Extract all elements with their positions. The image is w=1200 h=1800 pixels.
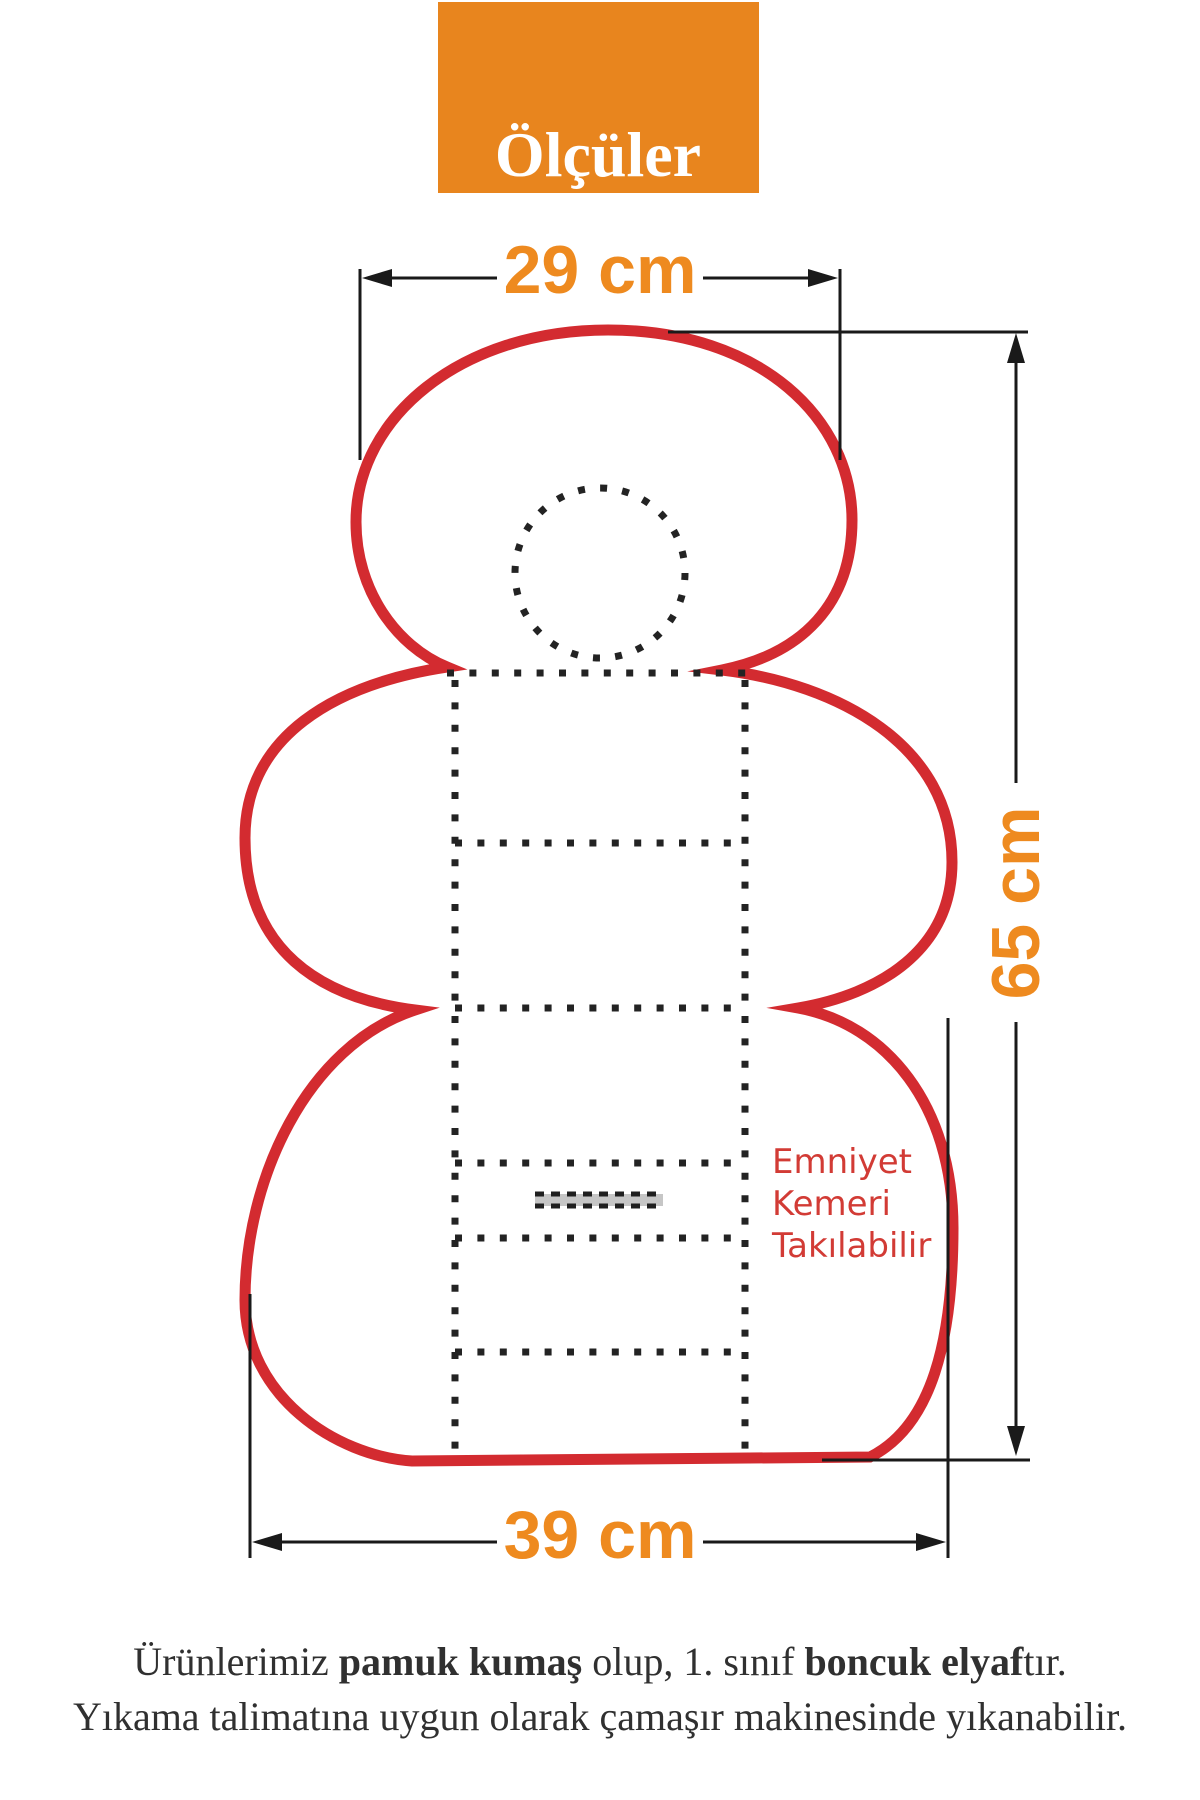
footer-line-1-seg-3: olup, 1. sınıf <box>582 1639 804 1684</box>
footer-line-1-seg-4: boncuk elyaf <box>804 1639 1024 1684</box>
seat-pad-outline <box>245 330 953 1461</box>
top-width-label: 29 cm <box>504 232 697 308</box>
footer-line-1: Ürünlerimiz pamuk kumaş olup, 1. sınıf b… <box>133 1639 1066 1684</box>
arrowhead-left <box>252 1533 282 1551</box>
belt-note-line-3: Takılabilir <box>771 1226 931 1266</box>
belt-note-line-1: Emniyet <box>772 1142 912 1182</box>
footer-line-1-seg-2: pamuk kumaş <box>339 1639 582 1684</box>
footer-line-1-seg-1: Ürünlerimiz <box>133 1639 339 1684</box>
footer-description: Ürünlerimiz pamuk kumaş olup, 1. sınıf b… <box>73 1639 1127 1739</box>
height-label: 65 cm <box>978 807 1054 1000</box>
belt-note-line-2: Kemeri <box>772 1184 891 1224</box>
footer-line-2: Yıkama talimatına uygun olarak çamaşır m… <box>73 1694 1127 1739</box>
footer-line-1-seg-5: tır. <box>1023 1639 1066 1684</box>
arrowhead-up <box>1007 333 1025 363</box>
belt-slot <box>535 1194 663 1206</box>
product-dimensions-diagram: Ölçüler 29 cm 65 cm <box>0 0 1200 1800</box>
arrowhead-left <box>362 269 392 287</box>
bottom-width-label: 39 cm <box>504 1497 697 1573</box>
arrowhead-right <box>808 269 838 287</box>
title-label: Ölçüler <box>495 119 701 190</box>
arrowhead-down <box>1007 1426 1025 1456</box>
arrowhead-right <box>916 1533 946 1551</box>
product-dimension-sheet: Ölçüler 29 cm 65 cm <box>0 0 1200 1800</box>
